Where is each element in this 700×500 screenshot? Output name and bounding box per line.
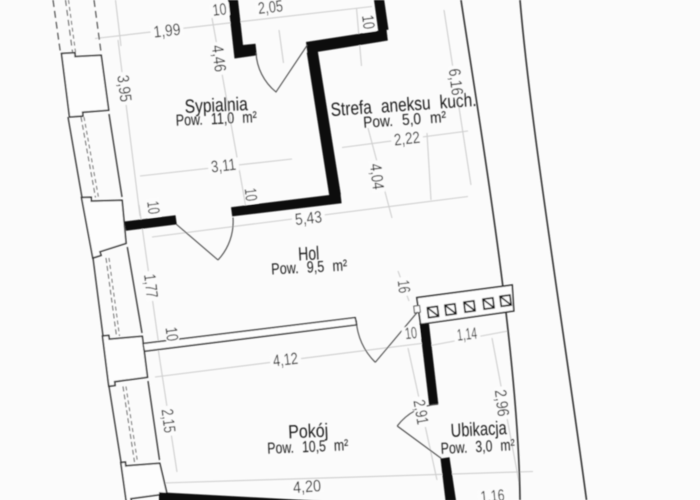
svg-text:4,04: 4,04 <box>366 163 387 191</box>
svg-text:2,22: 2,22 <box>393 129 421 150</box>
svg-text:2,05: 2,05 <box>257 0 284 18</box>
svg-text:1,77: 1,77 <box>140 273 161 299</box>
svg-text:10: 10 <box>212 0 228 19</box>
svg-text:4,46: 4,46 <box>208 44 229 73</box>
svg-text:4,20: 4,20 <box>292 477 321 497</box>
svg-text:1,14: 1,14 <box>456 325 478 345</box>
svg-text:Pow. 10,5 m²: Pow. 10,5 m² <box>267 437 349 458</box>
svg-text:3,95: 3,95 <box>113 74 134 103</box>
svg-text:16: 16 <box>394 279 413 294</box>
svg-text:5,43: 5,43 <box>294 208 323 229</box>
svg-text:10: 10 <box>162 326 182 342</box>
svg-text:1,16: 1,16 <box>480 487 505 500</box>
svg-text:10: 10 <box>404 324 418 343</box>
svg-text:1,99: 1,99 <box>153 21 182 42</box>
svg-text:10: 10 <box>358 14 378 30</box>
svg-text:10: 10 <box>241 187 260 202</box>
svg-text:3,11: 3,11 <box>210 156 237 177</box>
svg-text:10: 10 <box>143 200 162 215</box>
svg-text:4,12: 4,12 <box>272 350 299 371</box>
svg-text:2,96: 2,96 <box>491 389 512 418</box>
svg-text:Pow. 11,0 m²: Pow. 11,0 m² <box>175 109 257 130</box>
svg-text:2,15: 2,15 <box>158 408 179 434</box>
